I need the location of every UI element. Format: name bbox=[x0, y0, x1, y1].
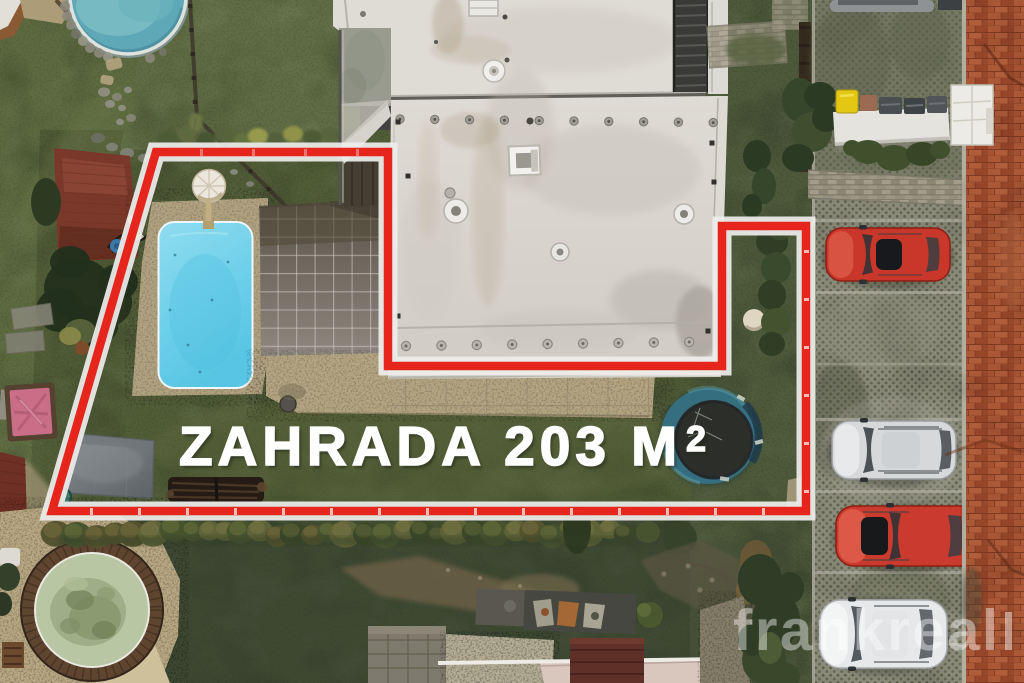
svg-text:frankreal: frankreal bbox=[733, 598, 1001, 663]
svg-text:ZAHRADA 203 M: ZAHRADA 203 M bbox=[179, 415, 682, 477]
svg-text:2: 2 bbox=[686, 418, 706, 459]
